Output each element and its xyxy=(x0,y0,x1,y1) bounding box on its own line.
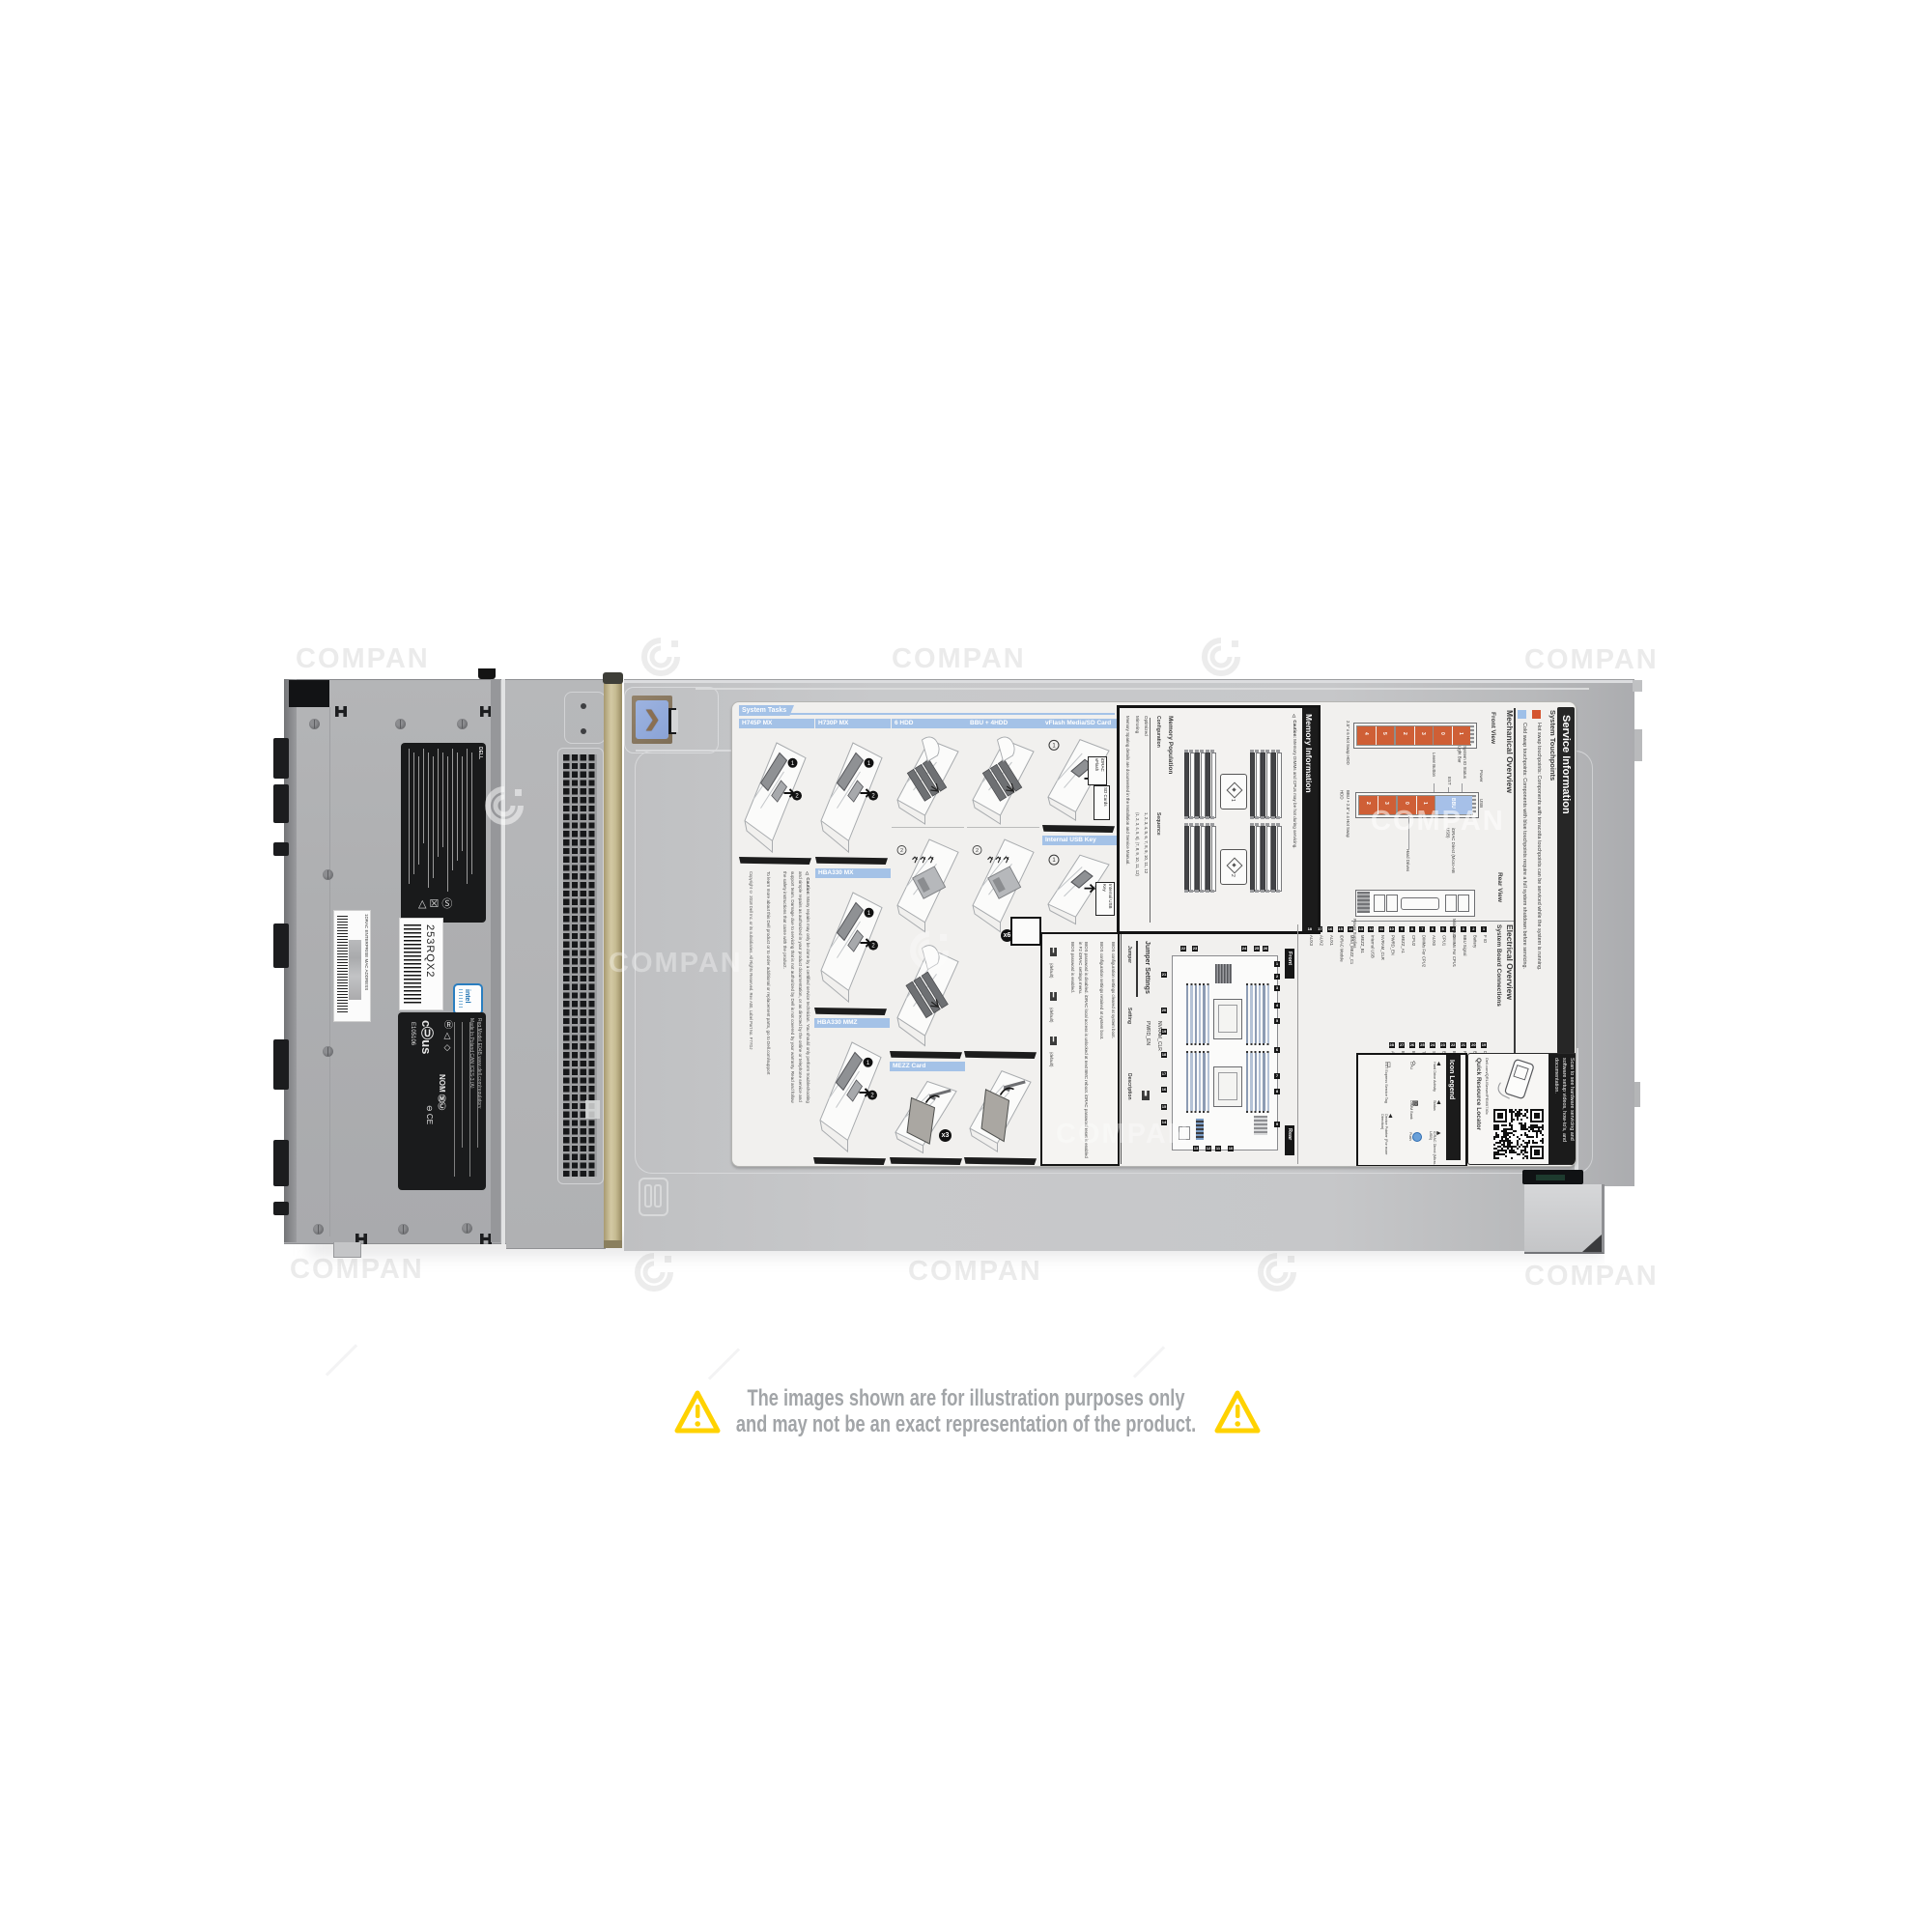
svg-text:1: 1 xyxy=(1052,743,1056,749)
svg-text:1: 1 xyxy=(1052,858,1056,864)
svg-text:2: 2 xyxy=(976,848,979,854)
svg-text:2: 2 xyxy=(900,848,903,854)
